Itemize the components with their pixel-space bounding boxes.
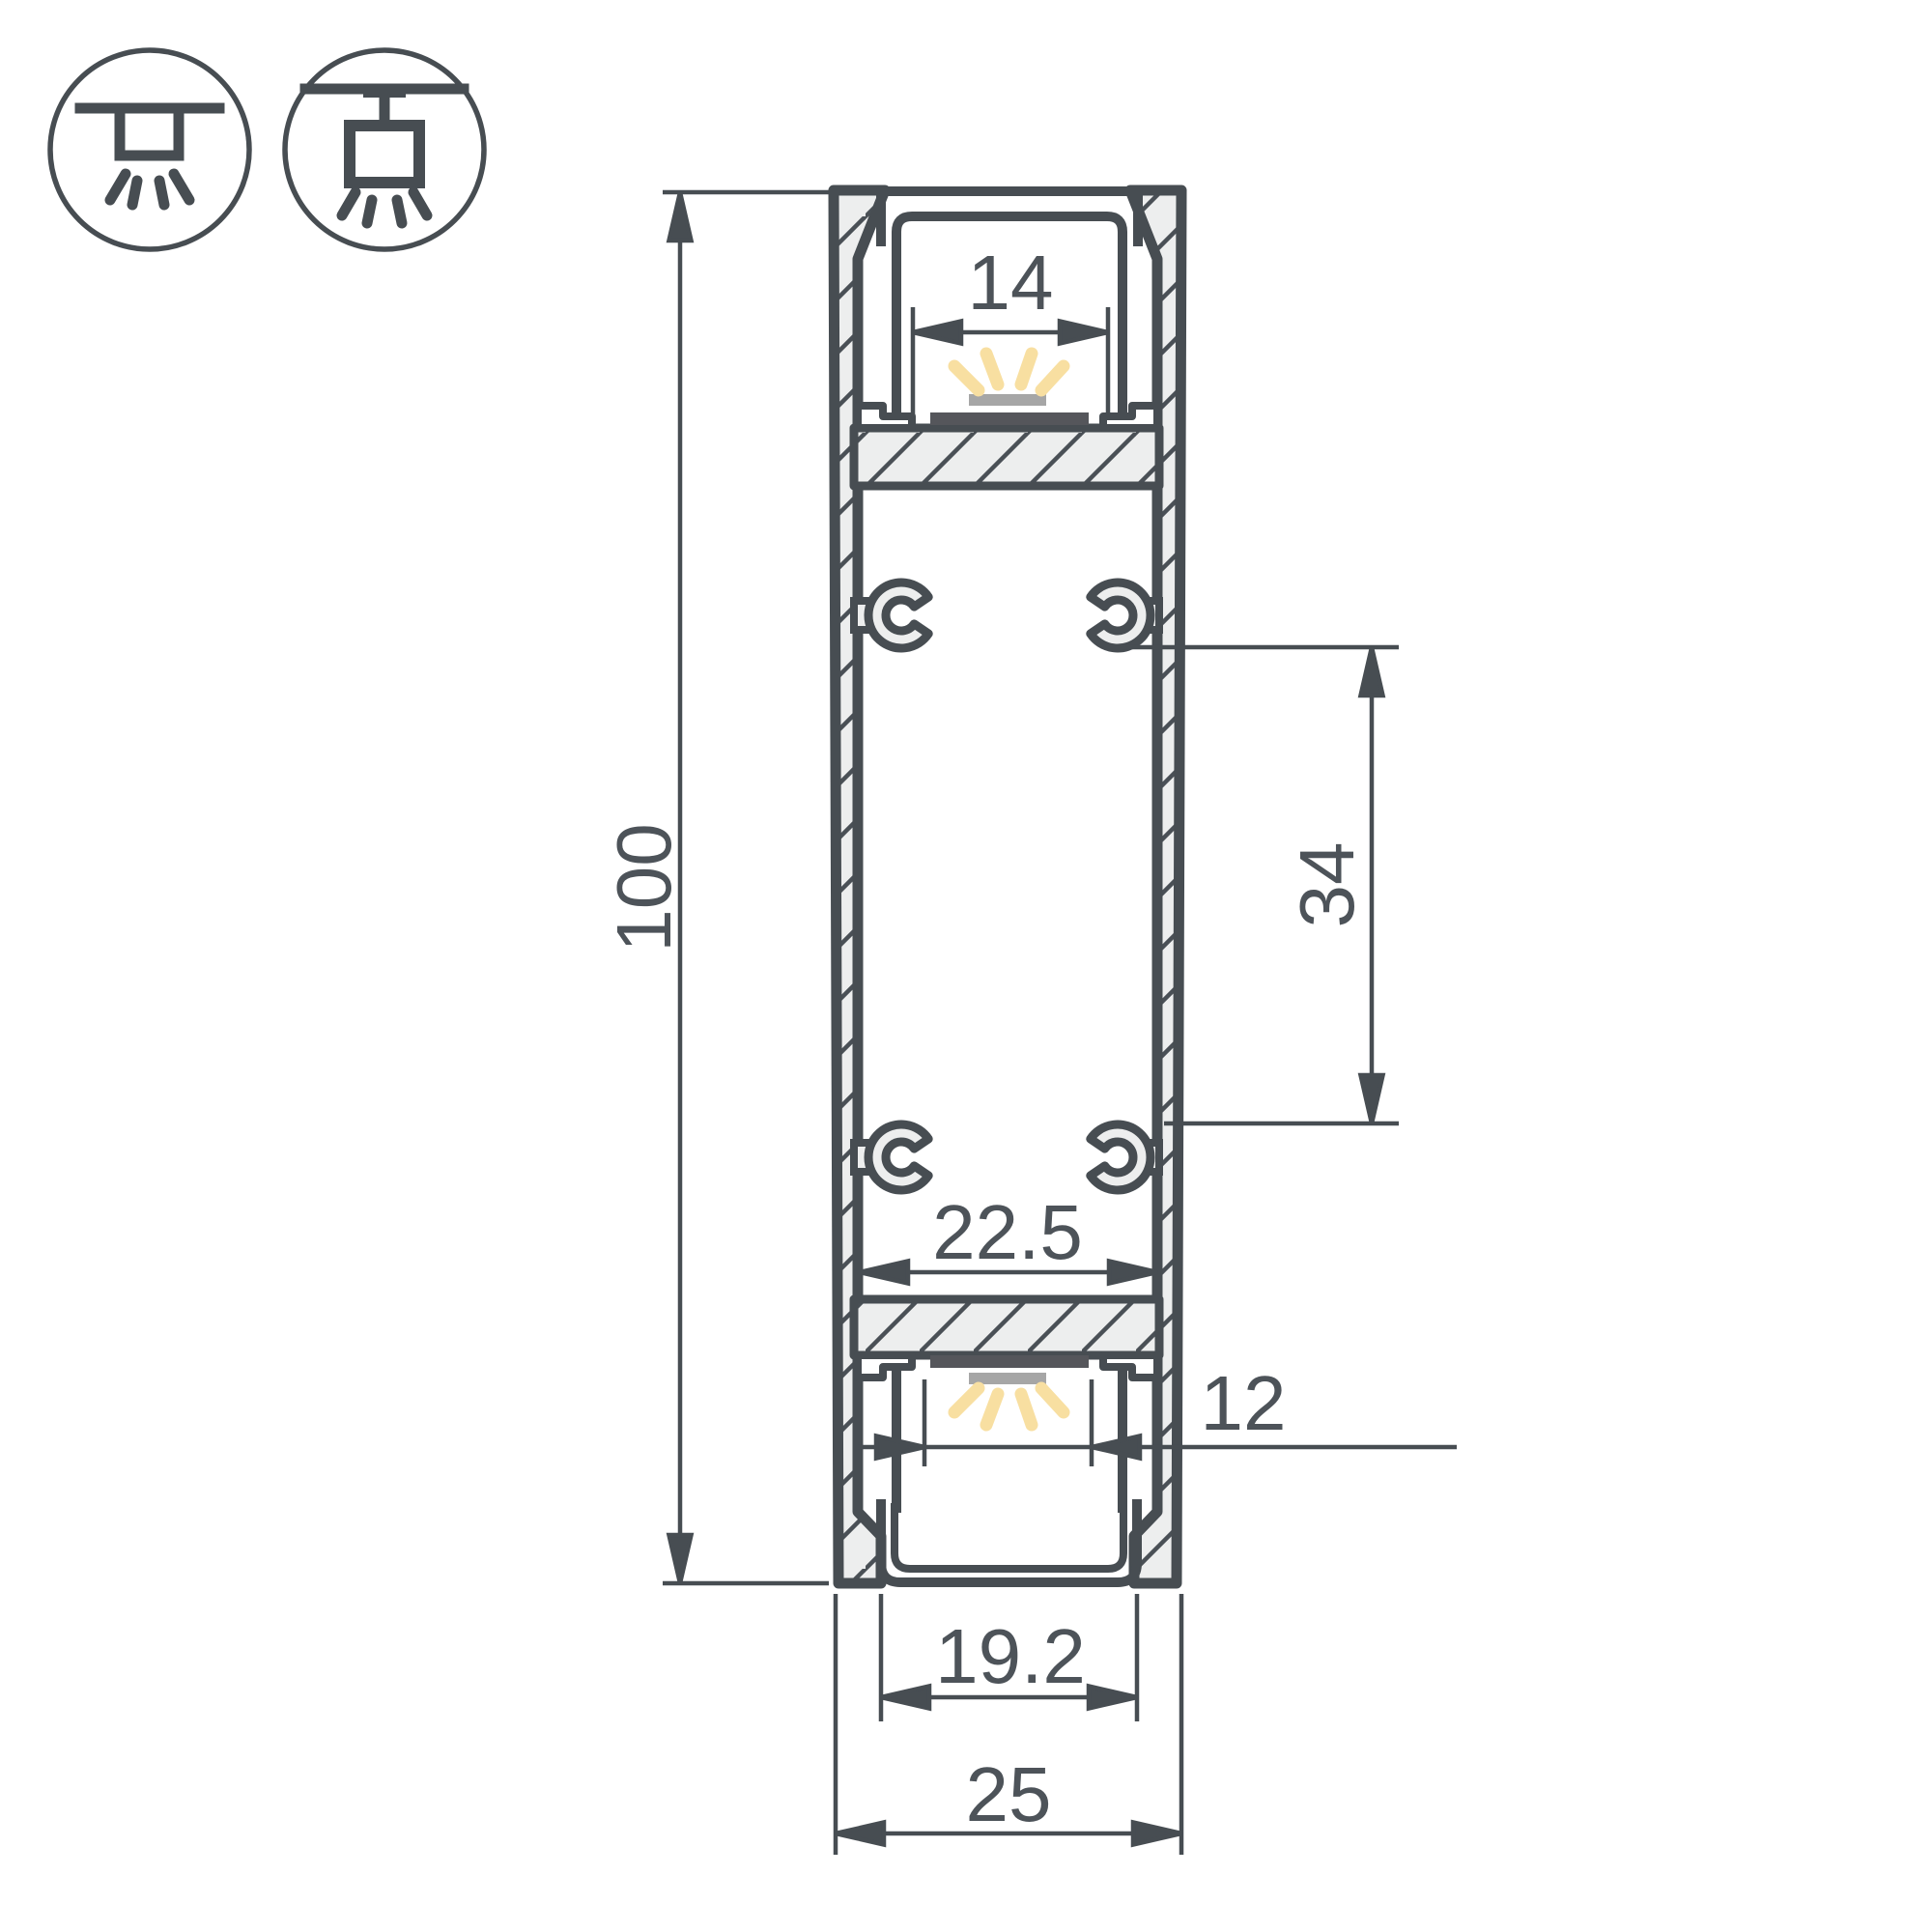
dim-label-bottom-led-width: 12 [1201, 1360, 1287, 1446]
led-glow-rays [954, 1388, 1064, 1425]
dim-label-overall-height: 100 [601, 823, 687, 952]
led-shelf-slot-right [1103, 1355, 1157, 1378]
led-shelf-slot-left [858, 406, 912, 428]
dim-label-bottom-opening: 19.2 [935, 1613, 1086, 1699]
screw-boss-top-right [1091, 582, 1151, 648]
technical-drawing-page: 100 14 34 22.5 12 19.2 25 [0, 0, 1932, 1932]
recessed-mount-icon [50, 50, 249, 249]
icon-circle [285, 50, 484, 249]
upper-divider-web [854, 428, 1159, 486]
bottom-led-chamber [858, 1355, 1157, 1582]
screw-bosses [854, 582, 1159, 1190]
lower-divider-web [854, 1299, 1159, 1355]
led-glow-rays [954, 354, 1064, 390]
dim-label-overall-width: 25 [966, 1751, 1052, 1837]
dim-label-top-opening: 14 [968, 240, 1054, 326]
dim-label-inner-width: 22.5 [932, 1189, 1083, 1275]
screw-boss-bottom-left [868, 1124, 928, 1190]
icon-circle [50, 50, 249, 249]
light-rays-icon [110, 174, 189, 205]
screw-boss-bottom-right [1091, 1124, 1151, 1190]
led-shelf-slot-left [858, 1355, 912, 1378]
led-pcb [930, 412, 1089, 425]
profile-cross-section-drawing: 100 14 34 22.5 12 19.2 25 [0, 0, 1932, 1932]
surface-mount-icon [285, 50, 484, 249]
mounting-icons [50, 50, 484, 249]
recessed-housing [120, 108, 179, 156]
led-shelf-slot-right [1103, 406, 1157, 428]
dim-label-mount-spacing: 34 [1284, 842, 1370, 928]
top-led-strip [930, 354, 1089, 425]
bottom-led-strip [930, 1355, 1089, 1425]
diffuser-inner [895, 1503, 1123, 1569]
dim-overall-height [663, 192, 829, 1583]
light-rays-icon [342, 192, 427, 223]
luminaire-box [350, 126, 419, 183]
led-pcb [930, 1355, 1089, 1368]
screw-boss-top-left [868, 582, 928, 648]
